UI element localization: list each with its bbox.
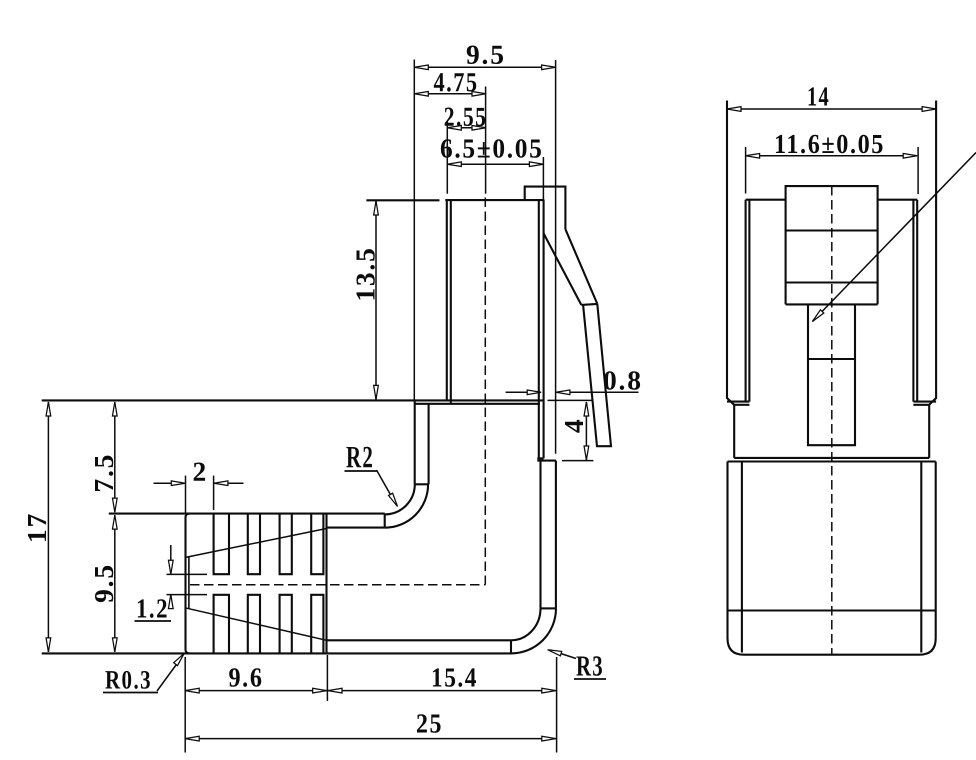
- svg-text:7.5: 7.5: [88, 453, 119, 493]
- svg-text:0.8: 0.8: [603, 365, 643, 396]
- svg-text:R2: R2: [346, 439, 374, 474]
- svg-text:4.75: 4.75: [433, 66, 478, 97]
- svg-text:R3: R3: [576, 651, 604, 683]
- svg-text:2.55: 2.55: [444, 101, 488, 132]
- svg-text:9.6: 9.6: [228, 662, 263, 693]
- svg-text:15.4: 15.4: [431, 662, 478, 693]
- svg-text:2: 2: [192, 456, 208, 487]
- svg-text:4: 4: [558, 418, 589, 434]
- svg-text:17: 17: [21, 512, 52, 543]
- svg-text:25: 25: [416, 708, 443, 739]
- svg-text:R0.3: R0.3: [105, 665, 152, 695]
- svg-text:9.5: 9.5: [88, 563, 119, 603]
- svg-text:9.5: 9.5: [466, 39, 506, 70]
- svg-text:14: 14: [807, 81, 830, 112]
- svg-text:11.6±0.05: 11.6±0.05: [774, 128, 885, 159]
- svg-text:1.2: 1.2: [136, 593, 169, 624]
- svg-text:13.5: 13.5: [350, 246, 381, 301]
- svg-text:6.5±0.05: 6.5±0.05: [440, 133, 544, 164]
